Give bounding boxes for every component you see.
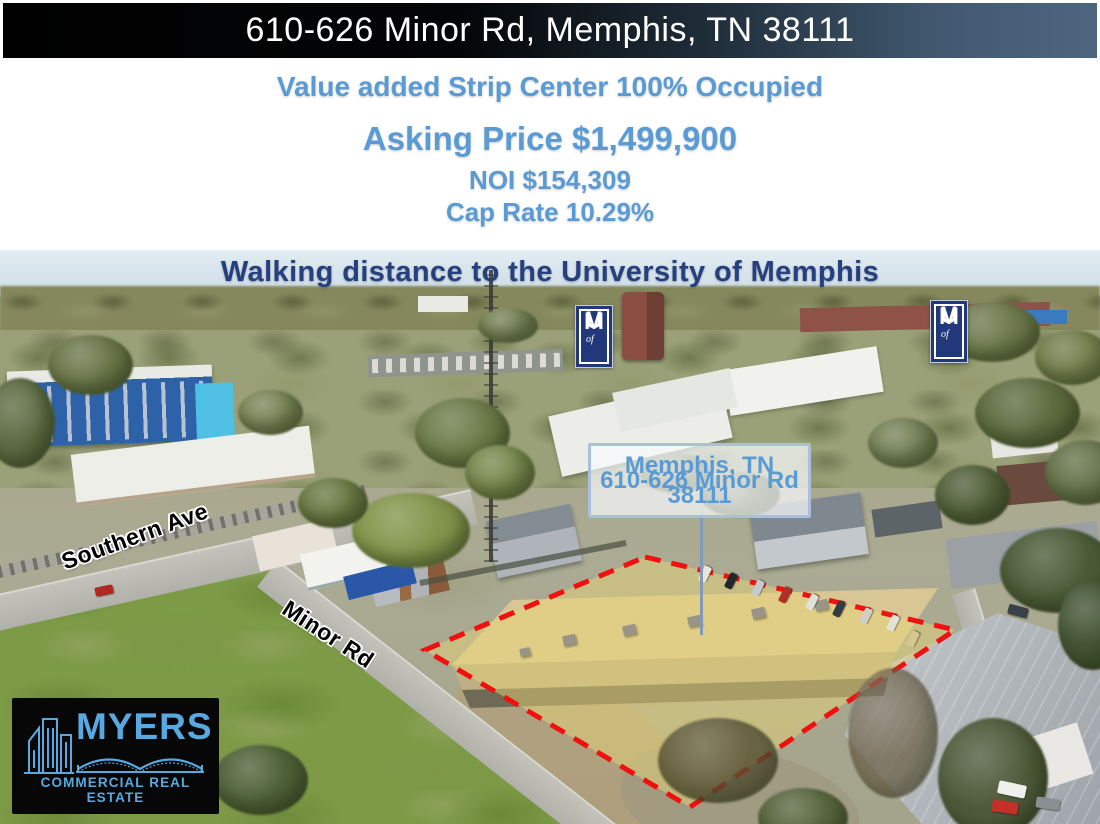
um-logo-icon: U M of xyxy=(575,305,613,368)
um-logo-frame: U M of xyxy=(934,304,964,359)
photo-caption: Walking distance to the University of Me… xyxy=(0,256,1100,289)
tree xyxy=(48,335,133,395)
bare-tree xyxy=(848,668,938,798)
tree xyxy=(868,418,938,468)
myers-tagline: COMMERCIAL REAL ESTATE xyxy=(12,775,219,805)
um-logo-frame: U M of xyxy=(579,309,609,364)
noi-text: NOI $154,309 xyxy=(0,165,1100,196)
aerial-photo: Walking distance to the University of Me… xyxy=(0,250,1100,824)
bare-tree xyxy=(658,718,778,803)
myers-name: MYERS xyxy=(76,706,213,748)
banner-title: 610-626 Minor Rd, Memphis, TN 38111 xyxy=(245,11,854,50)
property-label-line2: Memphis, TN 38111 xyxy=(591,451,808,511)
brick-tower xyxy=(622,292,664,360)
tree xyxy=(975,378,1080,448)
flyer-page: 610-626 Minor Rd, Memphis, TN 38111 Valu… xyxy=(0,0,1100,824)
pointer-line xyxy=(700,512,703,635)
tree xyxy=(465,445,535,500)
cap-rate-text: Cap Rate 10.29% xyxy=(0,197,1100,228)
distant-white-building xyxy=(418,296,468,312)
skyline-icon xyxy=(22,710,76,776)
address-banner: 610-626 Minor Rd, Memphis, TN 38111 xyxy=(3,3,1097,58)
tree xyxy=(213,745,308,815)
tree xyxy=(478,308,538,343)
um-logo-icon: U M of xyxy=(930,300,968,363)
property-label: 610-626 Minor Rd Memphis, TN 38111 xyxy=(588,443,811,518)
cyan-building-section xyxy=(195,382,235,441)
tree xyxy=(238,390,303,435)
um-letter-of: of xyxy=(941,329,949,340)
um-letter-of: of xyxy=(586,334,594,345)
tree xyxy=(352,493,470,568)
um-letter-m: M xyxy=(939,306,959,328)
um-letter-m: M xyxy=(584,311,604,333)
bridge-icon xyxy=(74,748,206,776)
subtitle-text: Value added Strip Center 100% Occupied xyxy=(0,71,1100,103)
tree xyxy=(298,478,368,528)
tree xyxy=(1035,330,1100,385)
asking-price-text: Asking Price $1,499,900 xyxy=(0,120,1100,158)
tree xyxy=(935,465,1010,525)
myers-logo: MYERS COMMERCIAL REAL ESTATE xyxy=(12,698,219,814)
